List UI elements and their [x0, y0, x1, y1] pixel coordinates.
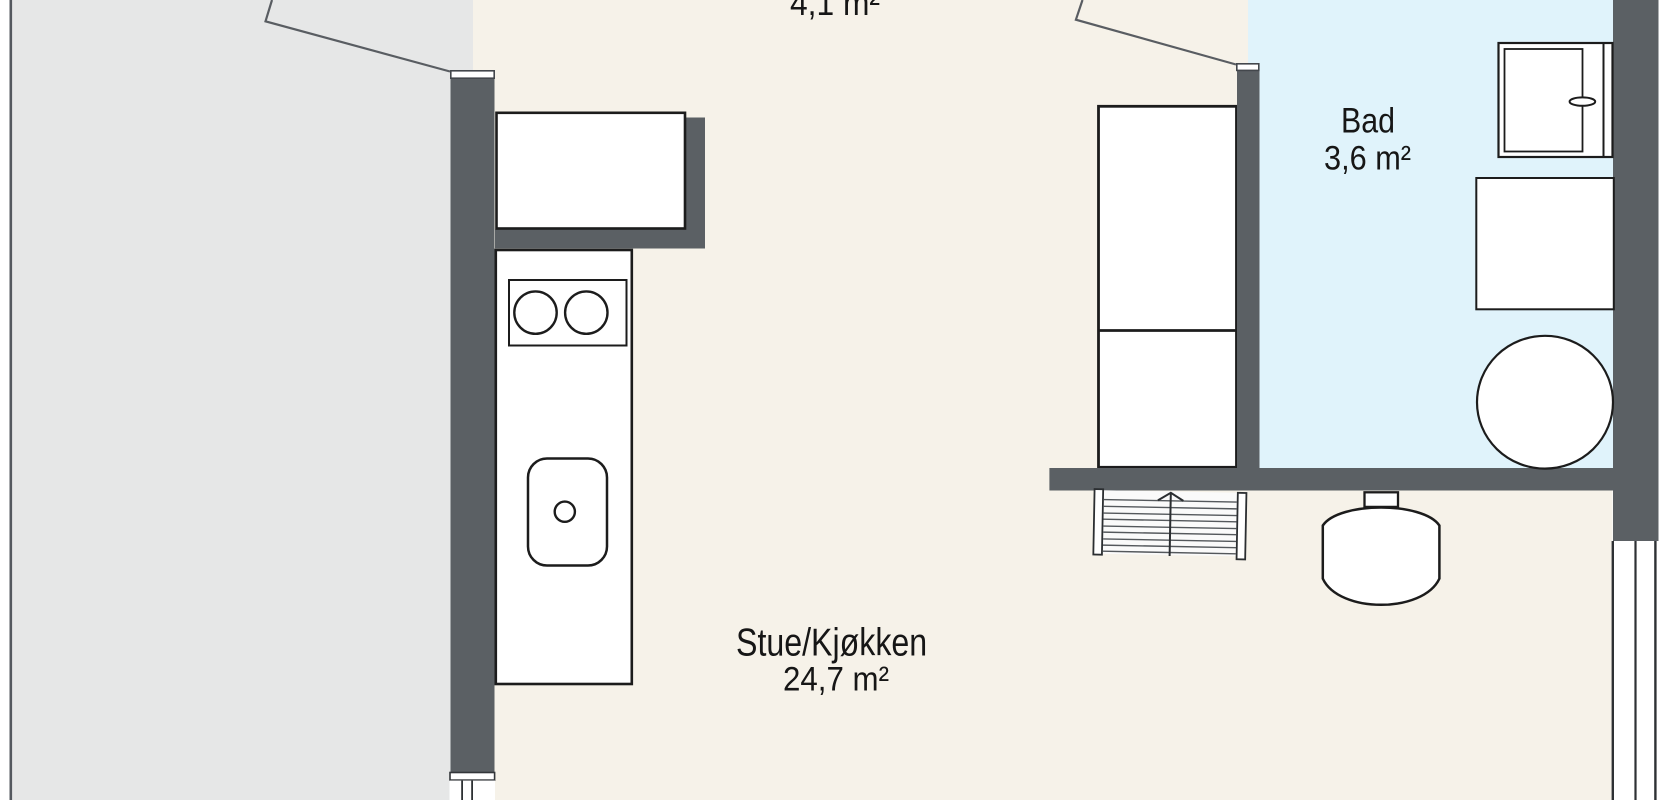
svg-text:24,7 m²: 24,7 m²: [783, 661, 889, 699]
svg-text:4,1 m²: 4,1 m²: [790, 0, 880, 23]
svg-text:Stue/Kjøkken: Stue/Kjøkken: [736, 621, 927, 664]
svg-text:3,6 m²: 3,6 m²: [1324, 140, 1411, 178]
svg-text:Bad: Bad: [1341, 100, 1395, 140]
